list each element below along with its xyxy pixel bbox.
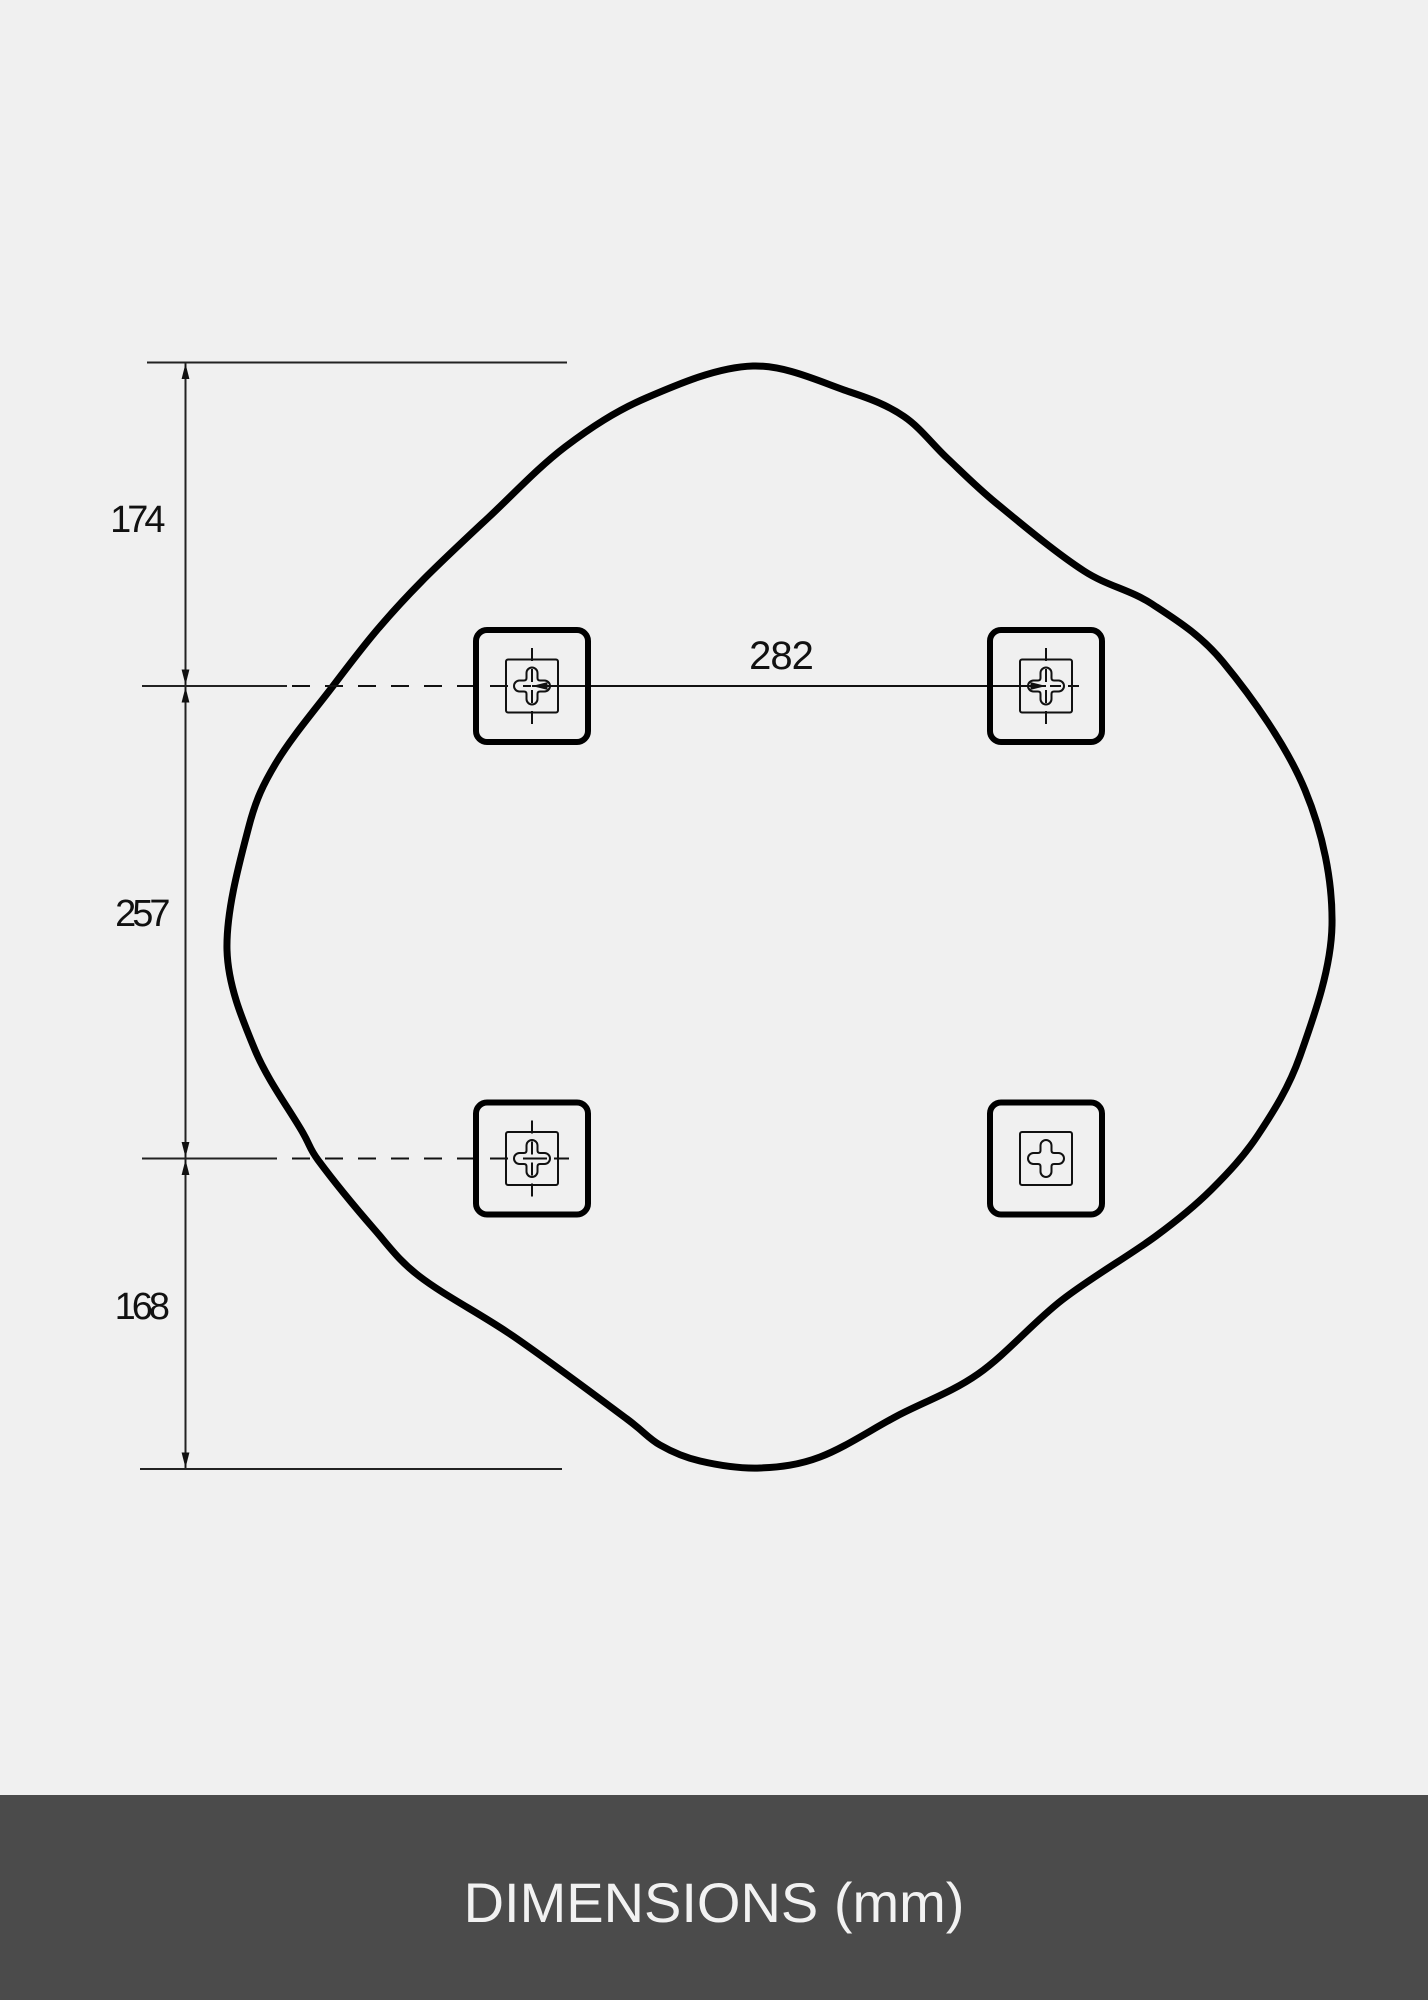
svg-text:168: 168 <box>115 1286 169 1328</box>
svg-text:282: 282 <box>749 634 813 678</box>
svg-text:DIMENSIONS (mm): DIMENSIONS (mm) <box>464 1871 965 1934</box>
svg-text:257: 257 <box>115 893 169 935</box>
svg-text:174: 174 <box>110 499 165 541</box>
